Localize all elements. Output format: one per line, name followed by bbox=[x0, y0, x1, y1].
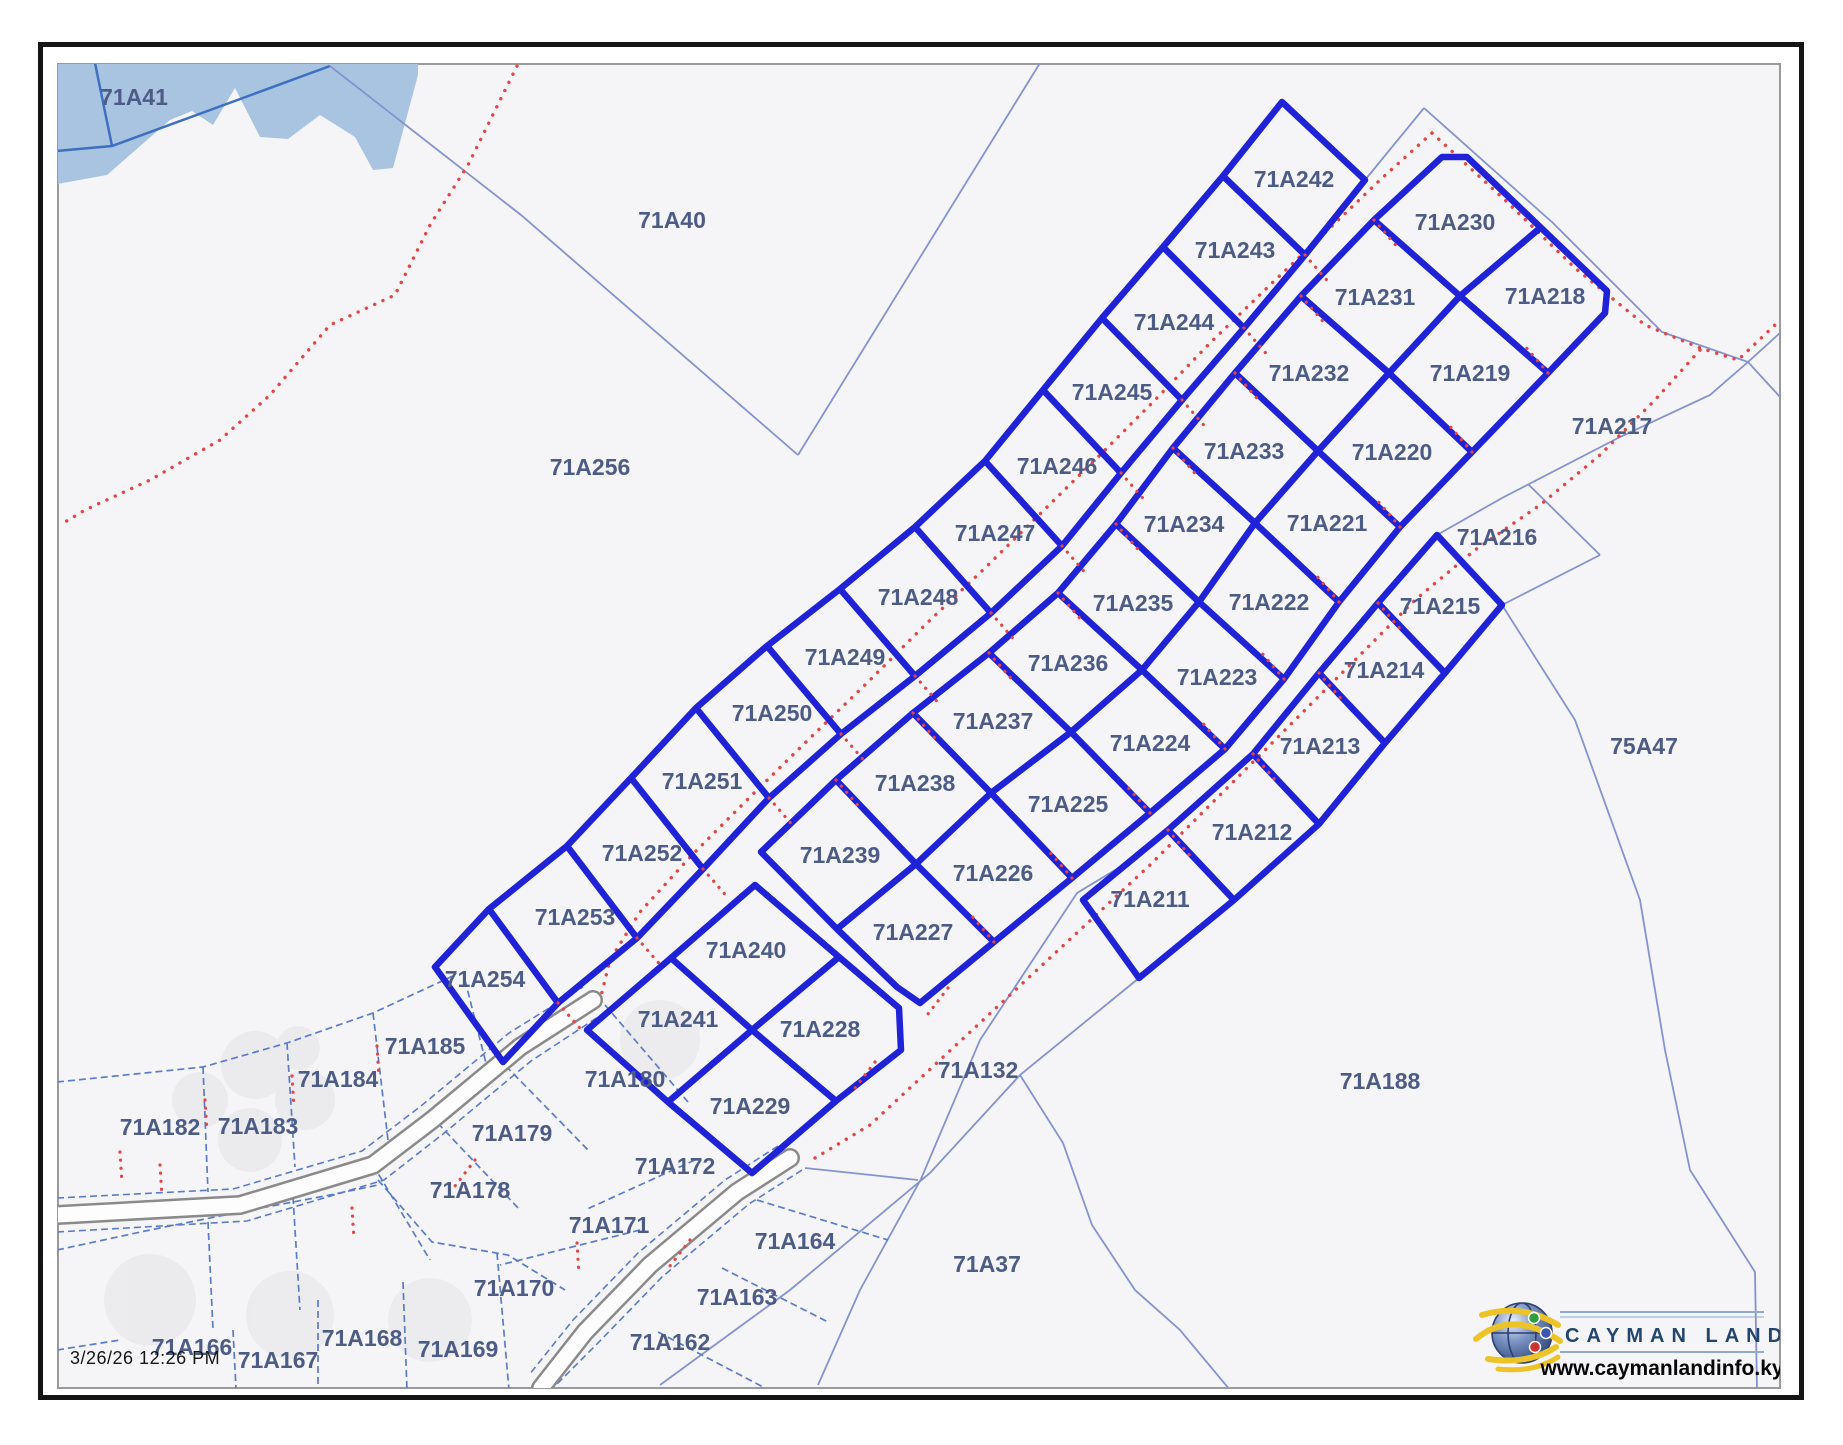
parcel-label: 71A219 bbox=[1430, 360, 1511, 386]
parcel-label: 71A178 bbox=[430, 1177, 511, 1203]
logo-brand-text: CAYMAN LAND INFO bbox=[1565, 1325, 1780, 1347]
parcel-label: 71A213 bbox=[1280, 733, 1361, 759]
parcel-label: 71A220 bbox=[1352, 439, 1433, 465]
parcel-label: 71A244 bbox=[1134, 309, 1215, 335]
parcel-label: 71A212 bbox=[1212, 819, 1293, 845]
parcel-label: 71A230 bbox=[1415, 209, 1496, 235]
parcel-label: 71A188 bbox=[1340, 1068, 1421, 1094]
thin-boundary-lines bbox=[330, 63, 1781, 1390]
parcel-label: 71A231 bbox=[1335, 284, 1416, 310]
parcel-label: 71A247 bbox=[955, 520, 1036, 546]
parcel-label: 71A234 bbox=[1144, 511, 1225, 537]
parcel-label: 71A256 bbox=[550, 454, 631, 480]
parcel-label: 71A215 bbox=[1400, 593, 1481, 619]
parcel-label: 71A233 bbox=[1204, 438, 1285, 464]
parcel-label: 71A162 bbox=[630, 1329, 711, 1355]
parcel-label: 71A249 bbox=[805, 644, 886, 670]
logo-url-text[interactable]: www.caymanlandinfo.ky bbox=[1539, 1357, 1780, 1380]
survey-dotted-lines bbox=[60, 66, 1775, 1158]
parcel-label: 71A182 bbox=[120, 1114, 201, 1140]
parcel-label: 71A221 bbox=[1287, 510, 1368, 536]
parcel-label: 71A171 bbox=[569, 1212, 650, 1238]
parcel-label: 71A237 bbox=[953, 708, 1034, 734]
parcel-label: 71A250 bbox=[732, 700, 813, 726]
parcel-label: 71A179 bbox=[472, 1120, 553, 1146]
parcel-label: 71A225 bbox=[1028, 791, 1109, 817]
parcel-label: 71A254 bbox=[445, 966, 526, 992]
parcel-label: 71A245 bbox=[1072, 379, 1153, 405]
parcel-label: 71A229 bbox=[710, 1093, 791, 1119]
parcel-label: 71A185 bbox=[385, 1033, 466, 1059]
parcel-label: 71A235 bbox=[1093, 590, 1174, 616]
parcel-label: 71A40 bbox=[638, 207, 706, 233]
parcel-label: 75A47 bbox=[1610, 733, 1678, 759]
parcel-label: 71A164 bbox=[755, 1228, 836, 1254]
parcel-label: 71A183 bbox=[218, 1113, 299, 1139]
parcel-label: 71A132 bbox=[938, 1057, 1019, 1083]
parcel-label: 71A251 bbox=[662, 768, 743, 794]
timestamp: 3/26/26 12:26 PM bbox=[70, 1348, 220, 1369]
parcel-label: 71A232 bbox=[1269, 360, 1350, 386]
parcel-label: 71A211 bbox=[1110, 886, 1190, 912]
parcel-label: 71A41 bbox=[100, 84, 168, 110]
parcel-label: 71A168 bbox=[322, 1325, 403, 1351]
parcel-label: 71A226 bbox=[953, 860, 1034, 886]
parcel-label: 71A172 bbox=[635, 1153, 716, 1179]
parcel-label: 71A167 bbox=[238, 1347, 319, 1373]
parcel-label: 71A238 bbox=[875, 770, 956, 796]
parcel-label: 71A246 bbox=[1017, 453, 1098, 479]
parcel-label: 71A242 bbox=[1254, 166, 1335, 192]
parcel-label: 71A184 bbox=[298, 1066, 379, 1092]
parcel-label: 71A236 bbox=[1028, 650, 1109, 676]
parcel-label: 71A217 bbox=[1572, 413, 1653, 439]
water-body bbox=[57, 63, 418, 184]
parcel-label: 71A224 bbox=[1110, 730, 1191, 756]
parcel-label: 71A180 bbox=[585, 1066, 666, 1092]
subdivision-highlight bbox=[435, 102, 1607, 1173]
parcel-label: 71A170 bbox=[474, 1275, 555, 1301]
parcel-label: 71A222 bbox=[1229, 589, 1310, 615]
parcel-label: 71A243 bbox=[1195, 237, 1276, 263]
parcel-label: 71A253 bbox=[535, 904, 616, 930]
parcel-label: 71A240 bbox=[706, 937, 787, 963]
parcel-label: 71A37 bbox=[953, 1251, 1021, 1277]
map-page: 71A4171A4071A25675A4771A13271A18871A3771… bbox=[0, 0, 1843, 1445]
parcel-label: 71A248 bbox=[878, 584, 959, 610]
parcel-label: 71A241 bbox=[638, 1006, 719, 1032]
cayman-land-info-logo: CAYMAN LAND INFO www.caymanlandinfo.ky bbox=[1468, 1295, 1780, 1387]
cadastral-map[interactable]: 71A4171A4071A25675A4771A13271A18871A3771… bbox=[0, 0, 1843, 1445]
parcel-label: 71A163 bbox=[697, 1284, 778, 1310]
parcel-label: 71A214 bbox=[1344, 657, 1425, 683]
parcel-label: 71A239 bbox=[800, 842, 881, 868]
parcel-label: 71A216 bbox=[1457, 524, 1538, 550]
parcel-label: 71A218 bbox=[1505, 283, 1586, 309]
parcel-label: 71A223 bbox=[1177, 664, 1258, 690]
parcel-label: 71A252 bbox=[602, 840, 683, 866]
parcel-label: 71A227 bbox=[873, 919, 954, 945]
parcel-label: 71A228 bbox=[780, 1016, 861, 1042]
parcel-label: 71A169 bbox=[418, 1336, 499, 1362]
